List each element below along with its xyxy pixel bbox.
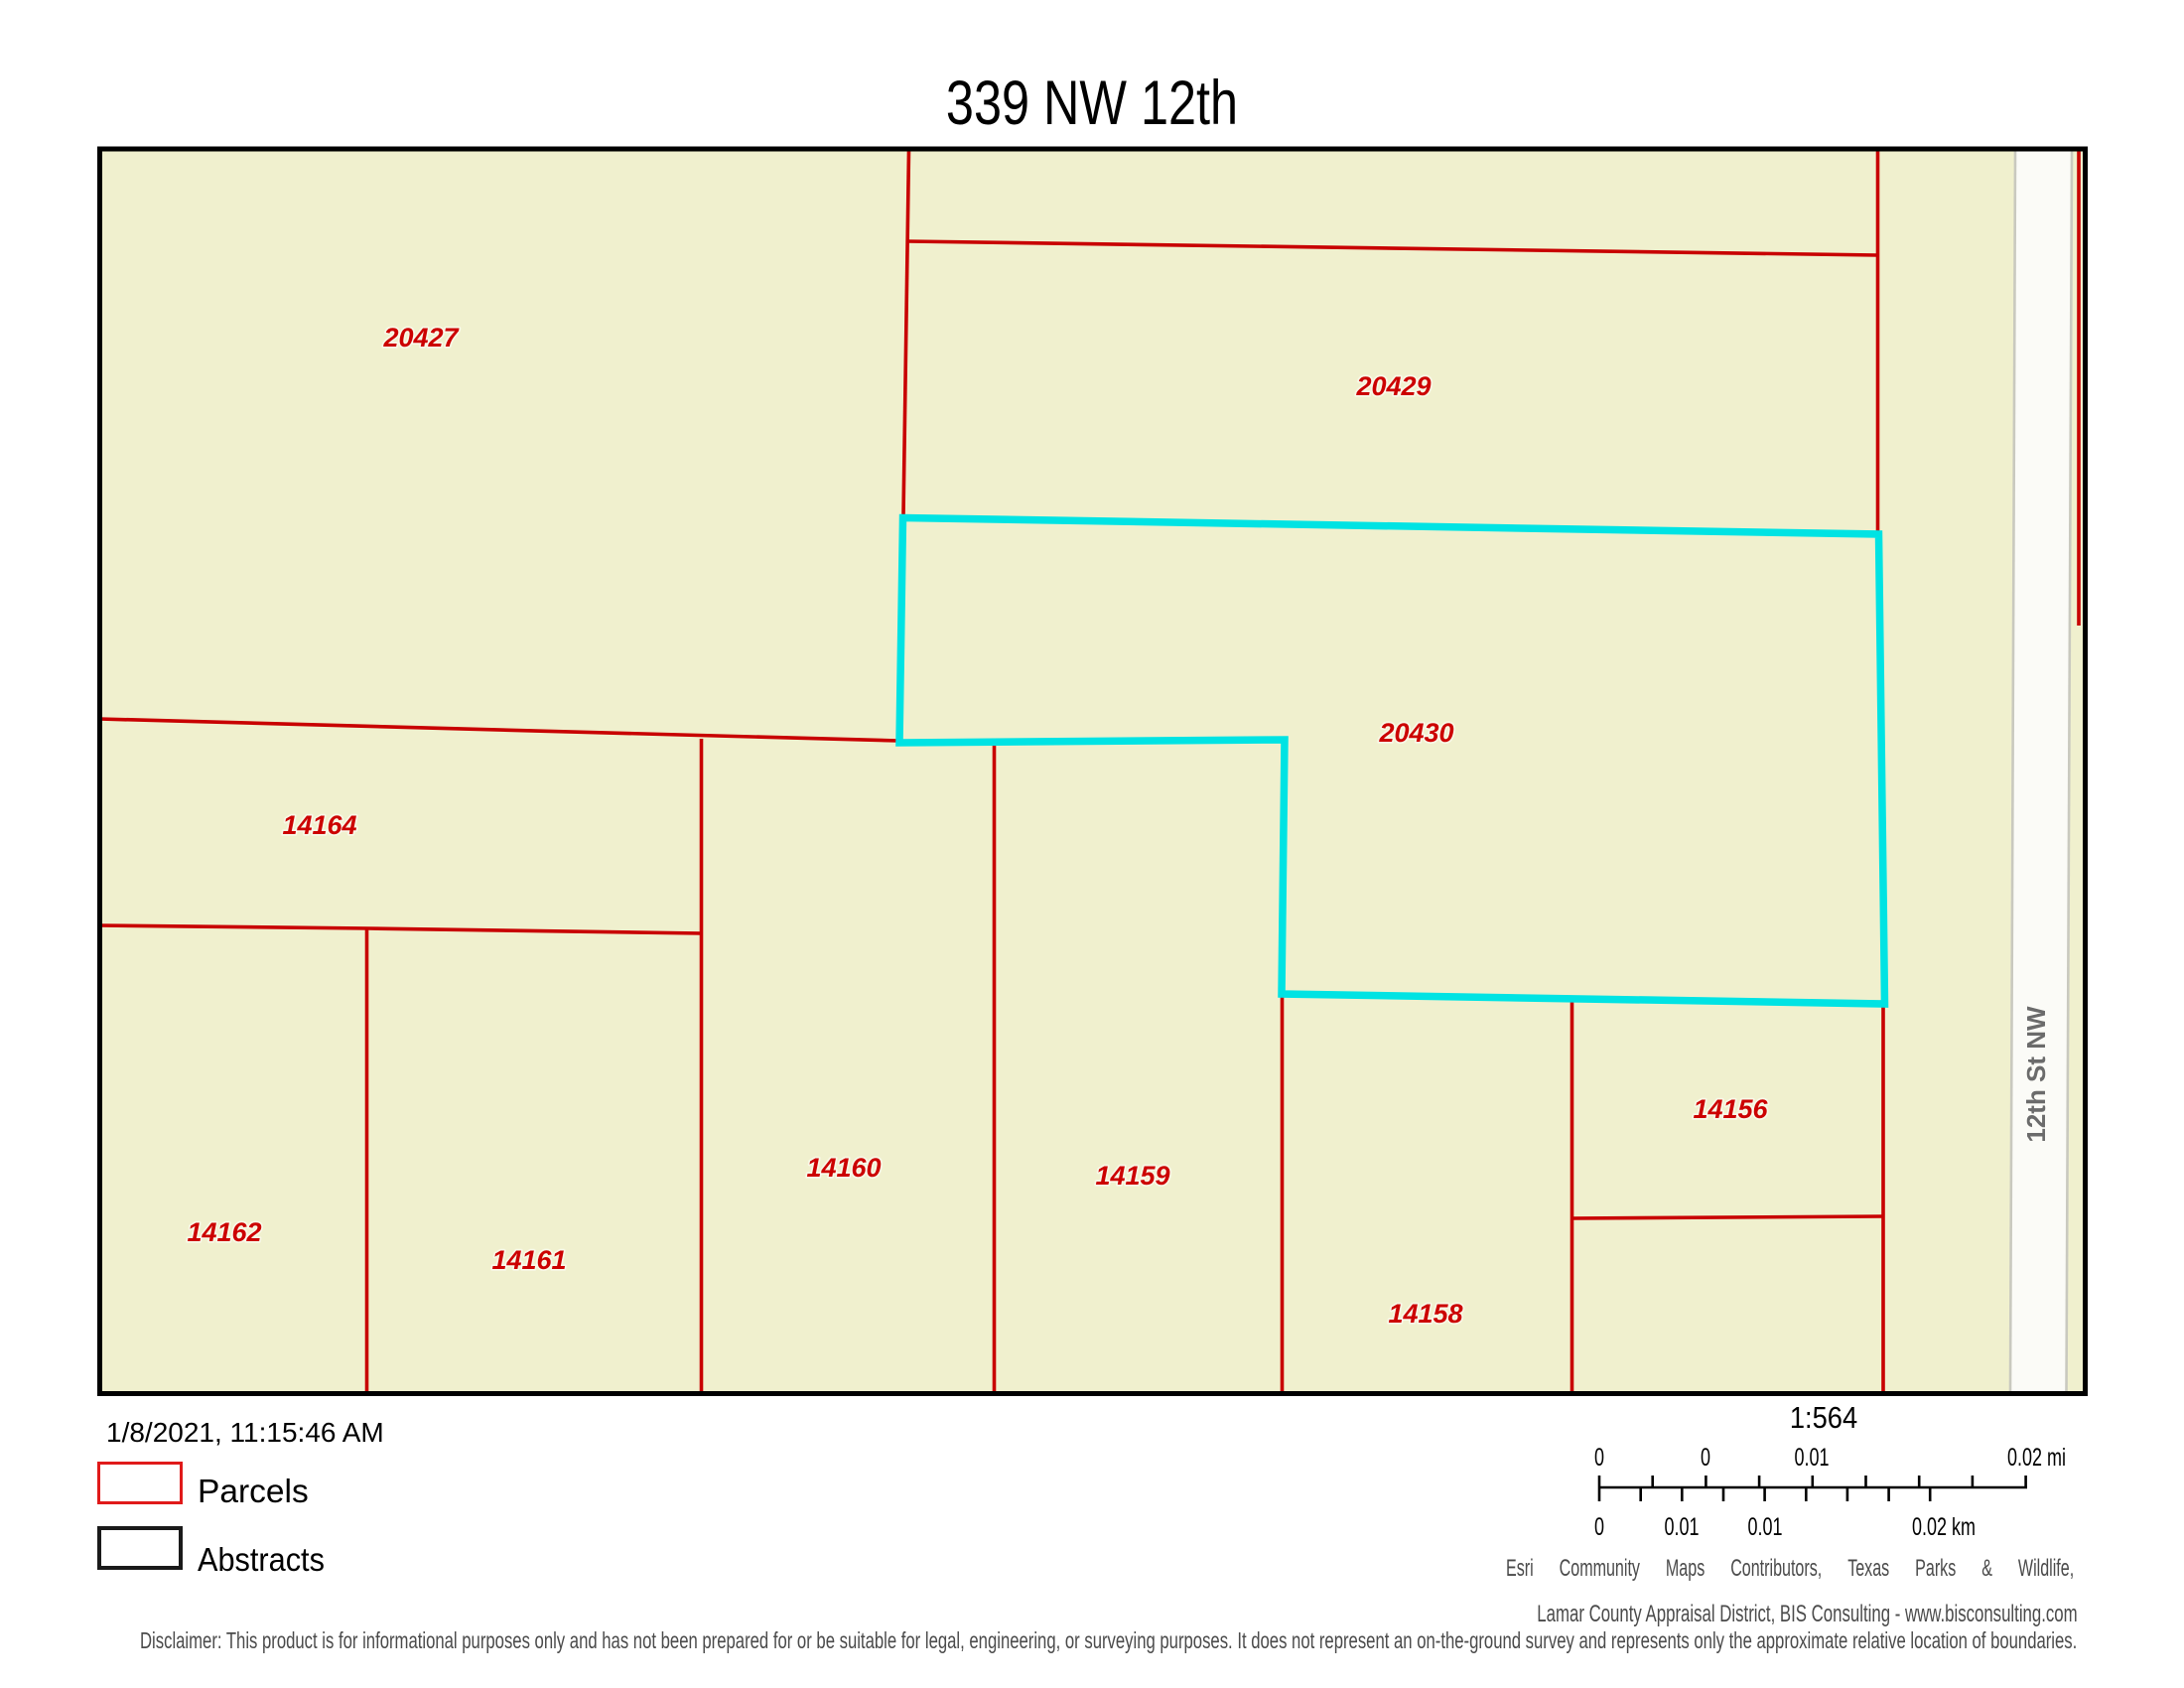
- svg-text:0: 0: [1594, 1512, 1604, 1541]
- svg-text:14159: 14159: [1095, 1161, 1169, 1191]
- svg-text:14162: 14162: [187, 1217, 261, 1247]
- svg-text:0.02 mi: 0.02 mi: [2007, 1443, 2066, 1472]
- svg-text:0.01: 0.01: [1664, 1512, 1699, 1541]
- svg-text:14156: 14156: [1693, 1094, 1768, 1124]
- svg-text:12th St NW: 12th St NW: [2021, 1006, 2051, 1143]
- svg-text:0.01: 0.01: [1794, 1443, 1829, 1472]
- svg-text:0: 0: [1594, 1443, 1604, 1472]
- svg-text:20427: 20427: [382, 323, 460, 352]
- svg-text:20430: 20430: [1378, 718, 1453, 748]
- svg-text:0.01: 0.01: [1747, 1512, 1782, 1541]
- svg-text:14158: 14158: [1388, 1299, 1462, 1329]
- svg-text:14161: 14161: [491, 1245, 566, 1275]
- svg-text:14160: 14160: [806, 1153, 881, 1183]
- svg-text:0.02 km: 0.02 km: [1912, 1512, 1976, 1541]
- svg-text:20429: 20429: [1355, 371, 1431, 401]
- svg-text:14164: 14164: [282, 810, 356, 840]
- svg-text:0: 0: [1701, 1443, 1710, 1472]
